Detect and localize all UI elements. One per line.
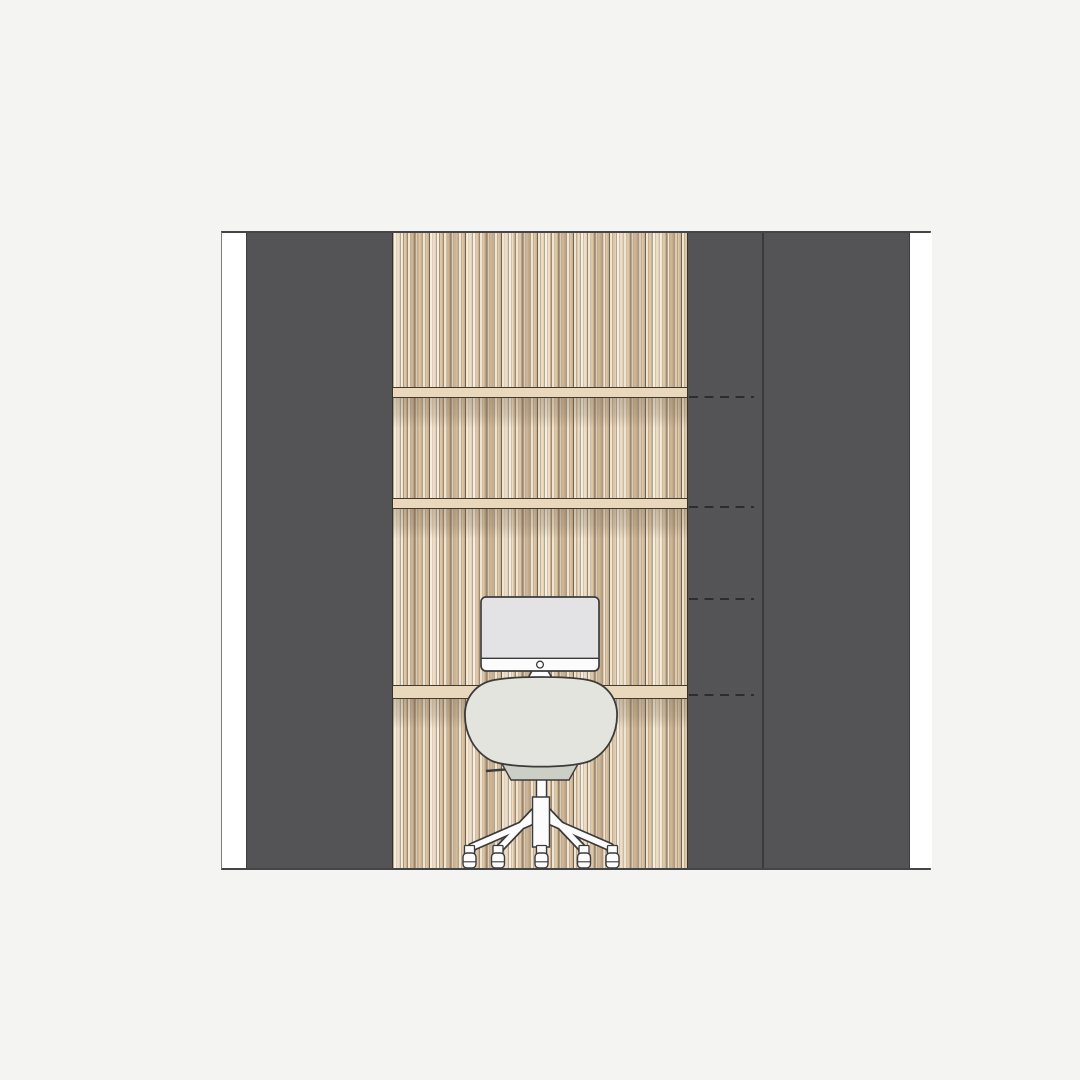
shelf-lower — [393, 498, 687, 509]
left-dark-panel — [246, 233, 392, 868]
shelf-upper-shadow — [393, 398, 687, 428]
elevation-frame — [221, 231, 931, 870]
guide-shelf-lower — [689, 506, 754, 508]
shelf-upper — [393, 387, 687, 398]
left-white-strip — [222, 233, 246, 868]
guide-desk — [689, 694, 754, 696]
guide-monitor-top — [689, 598, 754, 600]
drawing-canvas — [0, 0, 1080, 1080]
right-white-strip — [910, 233, 932, 868]
desk-shelf-shadow — [393, 699, 687, 729]
desk-shelf — [393, 685, 687, 699]
wood-slat-panel — [392, 233, 688, 868]
shelf-lower-shadow — [393, 509, 687, 539]
right-dark-panel-outer — [764, 233, 910, 868]
right-dark-panel-inner — [688, 233, 762, 868]
guide-shelf-upper — [689, 396, 754, 398]
